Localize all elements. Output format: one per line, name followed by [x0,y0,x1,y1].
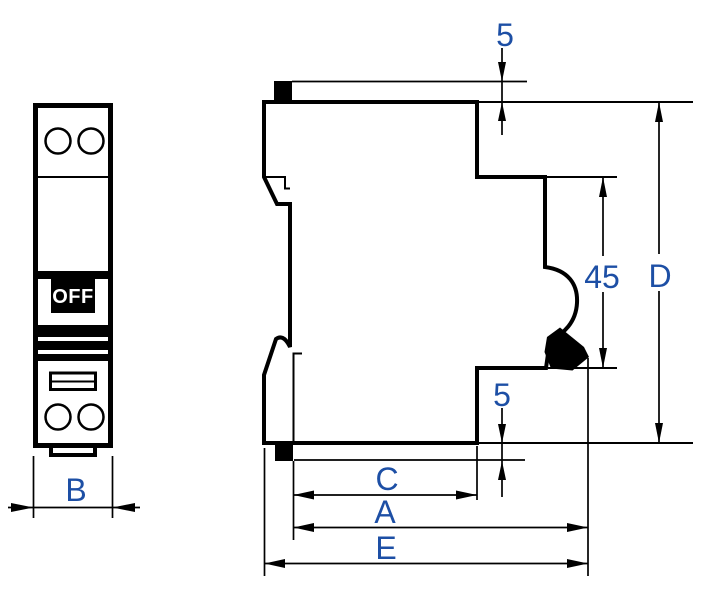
side-view: 5 45 D 5 C [264,17,693,576]
front-band-stripe-2 [38,350,108,354]
arrow-a-left [294,523,315,532]
dimension-d: D [648,102,671,443]
dimension-label-bottom-5: 5 [493,377,511,413]
dimension-label-c: C [375,461,398,497]
dimension-top-5: 5 [496,17,514,135]
top-busbar-block [274,81,292,102]
arrow-c-left [294,491,315,500]
arrow-bottom5-down [498,424,506,443]
terminal-screw-top-right [79,129,104,154]
dimension-b: B [8,456,140,518]
dimension-label-b: B [65,472,86,508]
arrow-e-left [265,559,286,568]
din-clip-tab [51,446,95,455]
arrow-b-left [11,503,34,512]
dimension-a: A [294,494,589,532]
arrow-e-right [567,559,588,568]
dimension-45: 45 [584,177,620,368]
dimension-label-45: 45 [584,259,620,295]
terminal-screw-top-left [46,129,71,154]
terminal-screw-bottom-left [46,405,71,430]
drawing-svg: OFF B [0,0,714,614]
arrow-45-down [599,348,607,368]
dimension-label-top-5: 5 [496,17,514,53]
arrow-top5-down [498,62,506,82]
mcb-dimension-drawing: OFF B [0,0,714,614]
front-band [38,325,108,361]
front-band-stripe-1 [38,337,108,341]
front-view: OFF B [8,106,140,519]
toggle-recess-top-band [38,271,108,279]
side-profile-outline [264,102,577,443]
arrow-top5-up [498,102,506,121]
clip-lever [545,328,590,371]
arrow-a-right [567,523,588,532]
bottom-busbar-block [275,445,293,462]
dimension-label-e: E [375,530,396,566]
dimension-bottom-5: 5 [493,377,511,497]
toggle-off-label: OFF [52,286,94,308]
arrow-d-down [655,423,663,443]
arrow-b-right [113,503,136,512]
arrow-45-up [599,177,607,197]
arrow-c-right [456,491,477,500]
dimension-label-a: A [374,494,396,530]
arrow-bottom5-up [498,461,506,480]
arrow-d-up [655,102,663,122]
dimension-e: E [265,530,589,568]
terminal-screw-bottom-right [79,405,104,430]
dimension-label-d: D [648,258,671,294]
